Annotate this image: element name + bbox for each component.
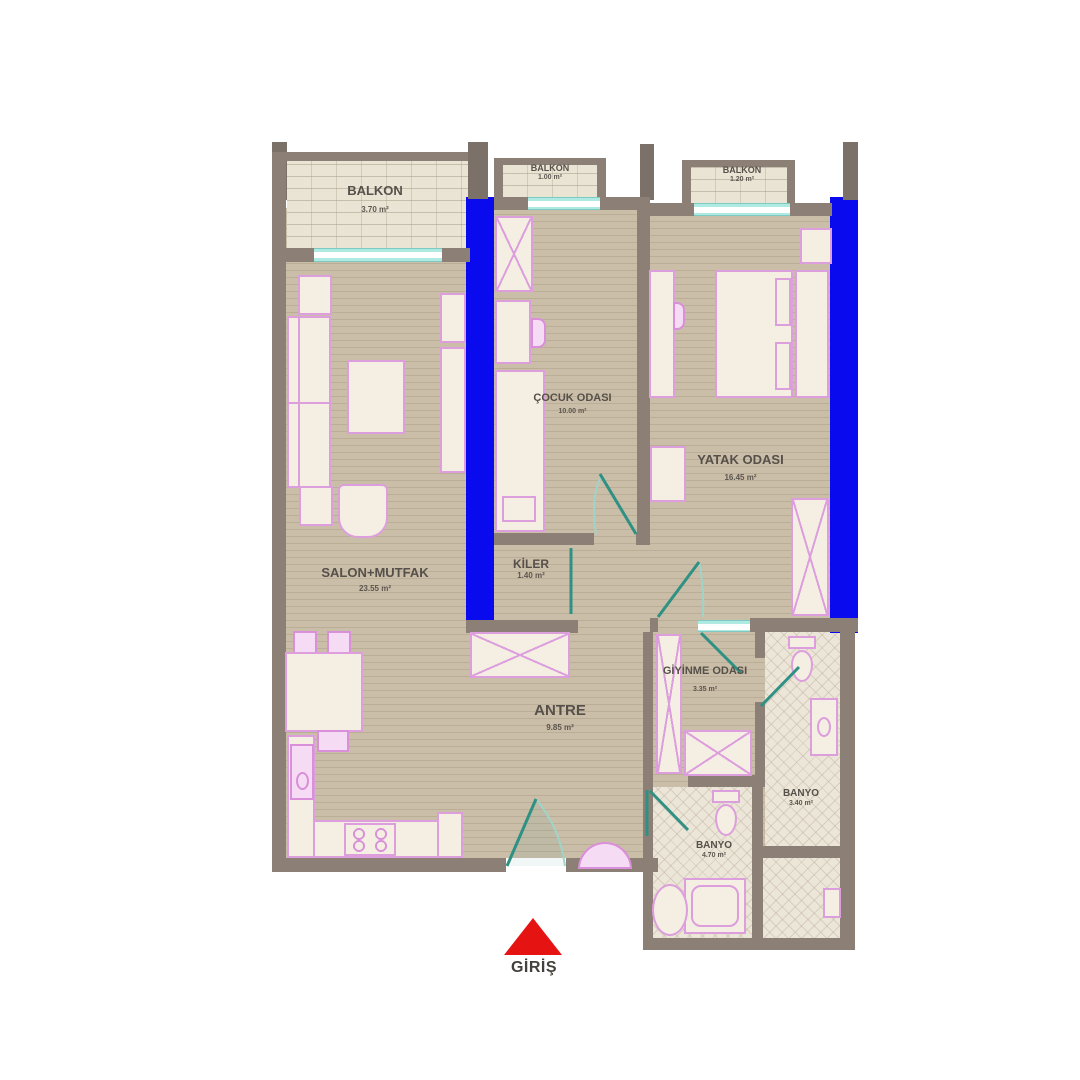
yatak-door-leaf	[658, 562, 699, 617]
room-area: 1.20 m²	[694, 176, 790, 184]
room-name: YATAK ODASI	[697, 452, 783, 467]
label-yatak: YATAK ODASI 16.45 m²	[668, 452, 813, 482]
label-banyo-right: BANYO 3.40 m²	[763, 788, 839, 808]
room-area: 23.55 m²	[295, 584, 455, 594]
entrance-arrow-icon	[504, 918, 562, 955]
label-salon: SALON+MUTFAK 23.55 m²	[295, 565, 455, 593]
banyo-right-door-leaf	[761, 667, 799, 706]
label-balkon-right: BALKON 1.20 m²	[694, 166, 790, 184]
label-banyo-bottom: BANYO 4.70 m²	[678, 840, 750, 860]
room-name: BALKON	[531, 163, 570, 173]
label-balkon-mid: BALKON 1.00 m²	[505, 164, 595, 182]
room-area: 1.00 m²	[505, 174, 595, 182]
room-name: BALKON	[347, 183, 403, 198]
label-balkon-left: BALKON 3.70 m²	[300, 183, 450, 214]
room-name: GİYİNME ODASI	[663, 665, 747, 677]
label-giyinme: GİYİNME ODASI 3.35 m²	[658, 665, 752, 695]
room-name: BANYO	[696, 840, 732, 851]
room-area: 3.40 m²	[763, 800, 839, 808]
entrance-label: GİRİŞ	[496, 958, 572, 977]
room-area: 10.00 m²	[515, 408, 630, 416]
label-kiler: KİLER 1.40 m²	[495, 557, 567, 581]
room-name: BALKON	[723, 165, 762, 175]
room-area: 3.70 m²	[300, 205, 450, 215]
entrance-text: GİRİŞ	[511, 959, 557, 976]
yatak-door-arc	[699, 562, 703, 617]
label-cocuk: ÇOCUK ODASI 10.00 m²	[515, 392, 630, 417]
banyo-bottom-door-leaf	[650, 791, 688, 830]
room-area: 16.45 m²	[668, 473, 813, 483]
room-area: 9.85 m²	[495, 723, 625, 733]
room-name: ÇOCUK ODASI	[533, 392, 611, 404]
room-area: 3.35 m²	[658, 686, 752, 695]
room-name: KİLER	[513, 557, 549, 571]
room-name: SALON+MUTFAK	[321, 565, 428, 580]
floor-plan: BALKON 3.70 m² BALKON 1.00 m² BALKON 1.2…	[0, 0, 1080, 1080]
label-antre: ANTRE 9.85 m²	[495, 702, 625, 733]
cocuk-door-leaf	[600, 474, 636, 534]
room-name: BANYO	[783, 788, 819, 799]
room-area: 4.70 m²	[678, 852, 750, 860]
room-name: ANTRE	[534, 702, 586, 719]
cocuk-door-arc	[594, 475, 602, 534]
room-area: 1.40 m²	[495, 571, 567, 581]
